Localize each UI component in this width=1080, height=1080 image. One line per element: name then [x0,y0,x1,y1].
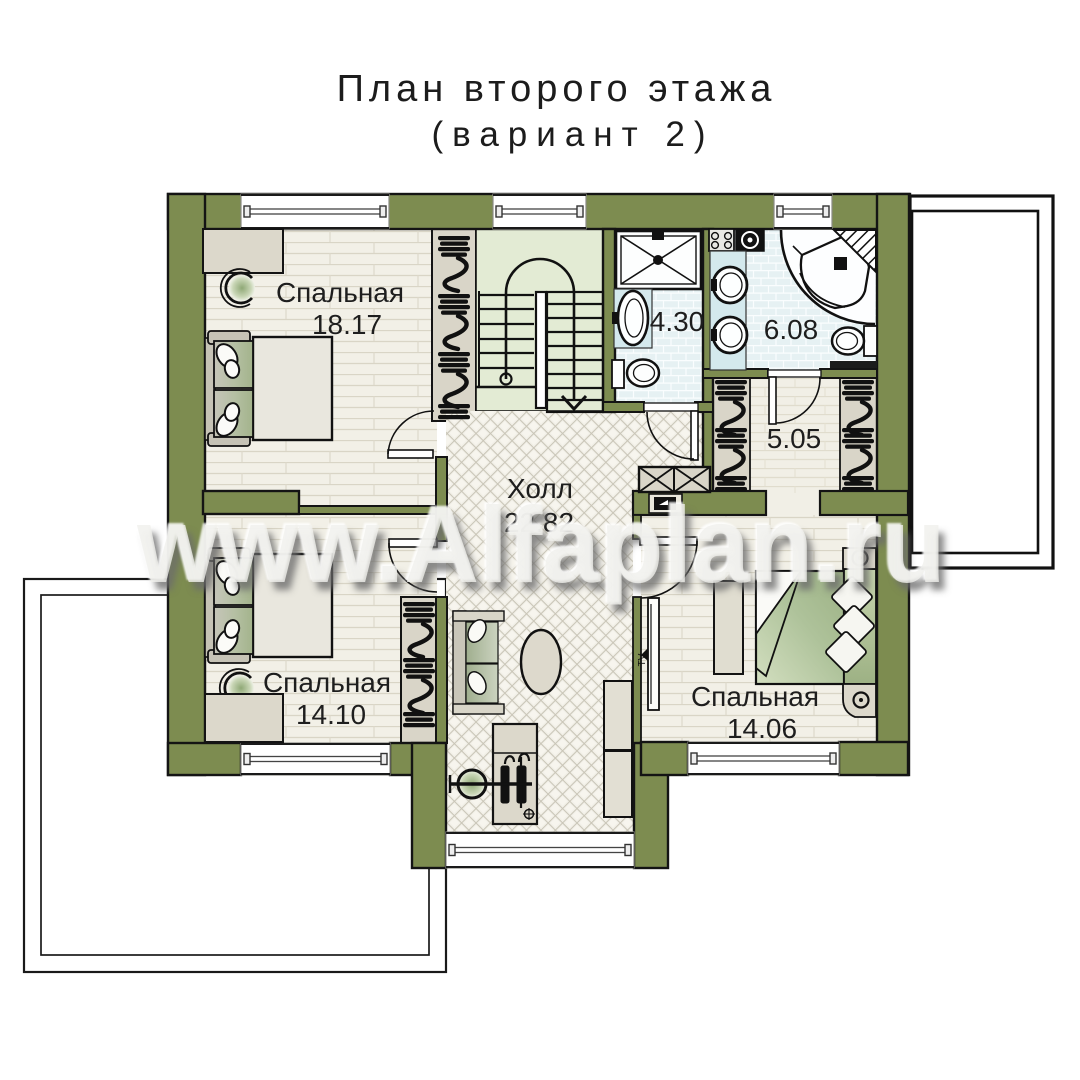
svg-text:6.08: 6.08 [764,314,819,345]
svg-text:Спальная: Спальная [276,277,404,308]
svg-text:Спальная: Спальная [691,681,819,712]
svg-text:14.06: 14.06 [727,713,797,744]
svg-text:Спальная: Спальная [263,667,391,698]
svg-text:18.17: 18.17 [312,309,382,340]
svg-text:4.30: 4.30 [650,306,705,337]
svg-text:TV: TV [637,653,648,666]
svg-text:14.10: 14.10 [296,699,366,730]
svg-text:5.05: 5.05 [767,423,822,454]
